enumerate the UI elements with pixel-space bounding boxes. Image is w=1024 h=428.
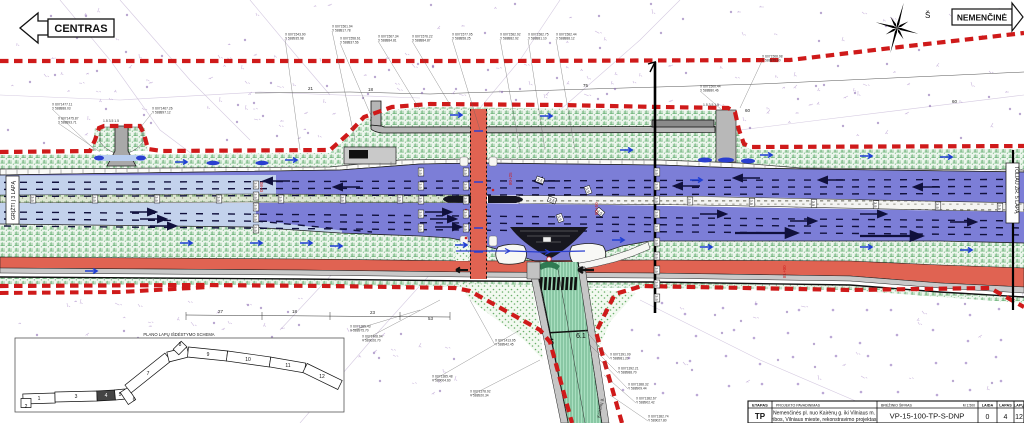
svg-text:Y 588981.20: Y 588981.20 — [610, 356, 629, 360]
svg-text:1.5 3.5 1.5: 1.5 3.5 1.5 — [703, 103, 719, 107]
svg-text:Y 589026.70: Y 589026.70 — [362, 338, 381, 342]
svg-text:3.5: 3.5 — [749, 199, 754, 205]
svg-text:3.5: 3.5 — [253, 226, 258, 232]
svg-text:10: 10 — [245, 357, 251, 363]
svg-text:75: 75 — [583, 83, 589, 88]
svg-text:Nemenčinės pl. nuo Kairėnų g.: Nemenčinės pl. nuo Kairėnų g. iki Vilnia… — [773, 411, 875, 417]
svg-text:Y 588881.10: Y 588881.10 — [528, 36, 547, 40]
svg-text:18: 18 — [368, 87, 374, 92]
svg-text:60: 60 — [952, 99, 958, 104]
svg-text:Y 588882.92: Y 588882.92 — [500, 36, 519, 40]
svg-text:3.5: 3.5 — [253, 193, 258, 199]
svg-text:3.5: 3.5 — [654, 267, 659, 273]
svg-text:Y 588837.56: Y 588837.56 — [340, 40, 359, 44]
svg-text:Y 588884.81: Y 588884.81 — [378, 38, 397, 42]
svg-text:3.5: 3.5 — [418, 169, 423, 175]
svg-text:BRĖŽINIO ŠIFRAS: BRĖŽINIO ŠIFRAS — [881, 403, 913, 408]
svg-text:Y 589027.80: Y 589027.80 — [648, 418, 667, 422]
svg-text:1: 1 — [38, 396, 41, 402]
svg-text:LAIDA: LAIDA — [982, 404, 994, 408]
svg-text:21: 21 — [308, 86, 314, 91]
svg-text:3.5: 3.5 — [92, 196, 97, 202]
svg-text:Y 588897.12: Y 588897.12 — [152, 110, 171, 114]
svg-text:12: 12 — [319, 374, 325, 380]
svg-text:3.5: 3.5 — [340, 196, 345, 202]
svg-text:Y 588884.87: Y 588884.87 — [412, 38, 431, 42]
svg-text:53: 53 — [428, 316, 434, 321]
svg-text:3.5: 3.5 — [654, 169, 659, 175]
svg-text:6: 6 — [133, 397, 136, 403]
svg-text:Y 588858.25: Y 588858.25 — [452, 36, 471, 40]
svg-text:ribos, Vilniaus mieste, rekons: ribos, Vilniaus mieste, rekonstravimo pr… — [772, 417, 877, 423]
svg-text:4: 4 — [1004, 414, 1008, 421]
svg-text:3.5: 3.5 — [253, 204, 258, 210]
svg-text:3.5: 3.5 — [278, 196, 283, 202]
svg-text:8: 8 — [179, 342, 182, 348]
svg-text:Š: Š — [925, 11, 930, 20]
svg-text:3.5: 3.5 — [253, 182, 258, 188]
svg-text:3.5: 3.5 — [463, 169, 468, 175]
svg-text:Y 588975.70: Y 588975.70 — [350, 328, 369, 332]
svg-text:7: 7 — [147, 371, 150, 377]
svg-text:TP: TP — [755, 412, 766, 421]
svg-text:3.5: 3.5 — [463, 211, 468, 217]
svg-text:PLANO LAPŲ IŠDĖSTYMO SCHEMA: PLANO LAPŲ IŠDĖSTYMO SCHEMA — [143, 332, 214, 337]
svg-text:Y 588902.42: Y 588902.42 — [636, 400, 655, 404]
svg-text:3.5: 3.5 — [418, 225, 423, 231]
svg-text:12: 12 — [1015, 414, 1023, 421]
svg-text:6.1: 6.1 — [576, 333, 586, 340]
svg-text:3.5: 3.5 — [873, 202, 878, 208]
svg-text:3.5: 3.5 — [654, 281, 659, 287]
svg-text:11: 11 — [285, 363, 290, 369]
svg-text:Y 588935.98: Y 588935.98 — [285, 36, 304, 40]
svg-text:3.5: 3.5 — [654, 211, 659, 217]
svg-text:Y 588817.78: Y 588817.78 — [332, 28, 351, 32]
svg-text:3.5: 3.5 — [463, 183, 468, 189]
svg-text:Y 588888.12: Y 588888.12 — [556, 36, 575, 40]
svg-text:0+80: 0+80 — [259, 181, 264, 192]
svg-text:60: 60 — [745, 108, 751, 113]
svg-text:4: 4 — [105, 393, 108, 399]
svg-text:3.5: 3.5 — [654, 295, 659, 301]
svg-text:3.5: 3.5 — [216, 196, 221, 202]
svg-text:Y 589004.60: Y 589004.60 — [432, 378, 451, 382]
svg-text:Y 588988.70: Y 588988.70 — [618, 370, 637, 374]
svg-text:3.5: 3.5 — [687, 198, 692, 204]
svg-text:81+00: 81+00 — [782, 265, 787, 278]
svg-text:3.5: 3.5 — [654, 183, 659, 189]
svg-text:Y 588888.03: Y 588888.03 — [52, 106, 71, 110]
svg-text:Y 588880.46: Y 588880.46 — [700, 88, 719, 92]
svg-text:3.5: 3.5 — [30, 196, 35, 202]
svg-text:27: 27 — [218, 309, 224, 314]
svg-text:3.5: 3.5 — [463, 197, 468, 203]
svg-text:3.5: 3.5 — [418, 211, 423, 217]
svg-text:9: 9 — [207, 352, 210, 358]
svg-text:3.5: 3.5 — [397, 196, 402, 202]
svg-text:GRĮŽTI Į 3 LAPĄ: GRĮŽTI Į 3 LAPĄ — [9, 181, 17, 220]
svg-text:80+50: 80+50 — [594, 202, 599, 215]
svg-text:LAPŲ: LAPŲ — [1014, 404, 1024, 408]
svg-text:3.5: 3.5 — [654, 225, 659, 231]
svg-text:3.5: 3.5 — [253, 215, 258, 221]
svg-text:TOLIAU ŽR. 5 LAPĄ: TOLIAU ŽR. 5 LAPĄ — [1013, 166, 1021, 214]
svg-text:0: 0 — [986, 414, 990, 421]
svg-text:NEMENČINĖ: NEMENČINĖ — [957, 12, 1008, 23]
svg-text:3.5: 3.5 — [418, 197, 423, 203]
svg-text:Y 588893.71: Y 588893.71 — [58, 120, 77, 124]
svg-text:3.5: 3.5 — [654, 253, 659, 259]
svg-text:3.5: 3.5 — [154, 196, 159, 202]
svg-text:80+25: 80+25 — [508, 172, 513, 185]
svg-text:1.5 3.5 1.5: 1.5 3.5 1.5 — [103, 119, 119, 123]
svg-text:LAPAS: LAPAS — [999, 404, 1012, 408]
svg-text:23: 23 — [370, 310, 376, 315]
svg-text:ETAPAS: ETAPAS — [752, 403, 768, 408]
svg-text:3: 3 — [75, 394, 78, 400]
svg-text:3.5: 3.5 — [935, 203, 940, 209]
svg-text:Y 588909.44: Y 588909.44 — [628, 386, 647, 390]
svg-text:3.5: 3.5 — [654, 239, 659, 245]
svg-text:3.5: 3.5 — [463, 225, 468, 231]
svg-text:3.5: 3.5 — [654, 197, 659, 203]
svg-text:CENTRAS: CENTRAS — [54, 23, 107, 35]
svg-text:3.5: 3.5 — [418, 183, 423, 189]
svg-text:Y 588875.00: Y 588875.00 — [762, 58, 781, 62]
svg-text:M 1:500: M 1:500 — [963, 404, 975, 408]
svg-text:18: 18 — [292, 309, 298, 314]
svg-text:Y 588920.34: Y 588920.34 — [470, 393, 489, 397]
svg-text:VP-15-100-TP-S-DNP: VP-15-100-TP-S-DNP — [890, 412, 965, 421]
svg-text:3.5: 3.5 — [997, 204, 1002, 210]
svg-text:PROJEKTO PAVADINIMAS: PROJEKTO PAVADINIMAS — [776, 404, 821, 408]
svg-text:3.5: 3.5 — [811, 201, 816, 207]
svg-text:2: 2 — [25, 404, 28, 410]
